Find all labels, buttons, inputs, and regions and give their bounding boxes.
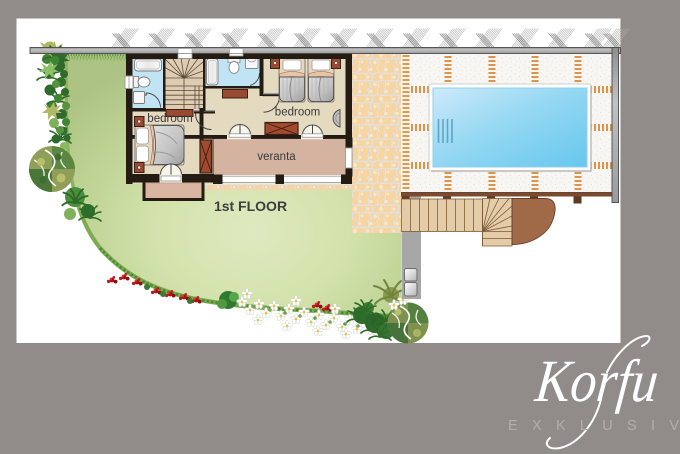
svg-text:veranta: veranta: [257, 151, 296, 163]
svg-text:bedroom: bedroom: [275, 107, 320, 119]
svg-text:bedroom: bedroom: [147, 113, 192, 125]
svg-text:1st FLOOR: 1st FLOOR: [214, 198, 287, 214]
svg-text:Korfu: Korfu: [532, 348, 662, 415]
svg-text:EXKLUSIV: EXKLUSIV: [508, 418, 680, 434]
